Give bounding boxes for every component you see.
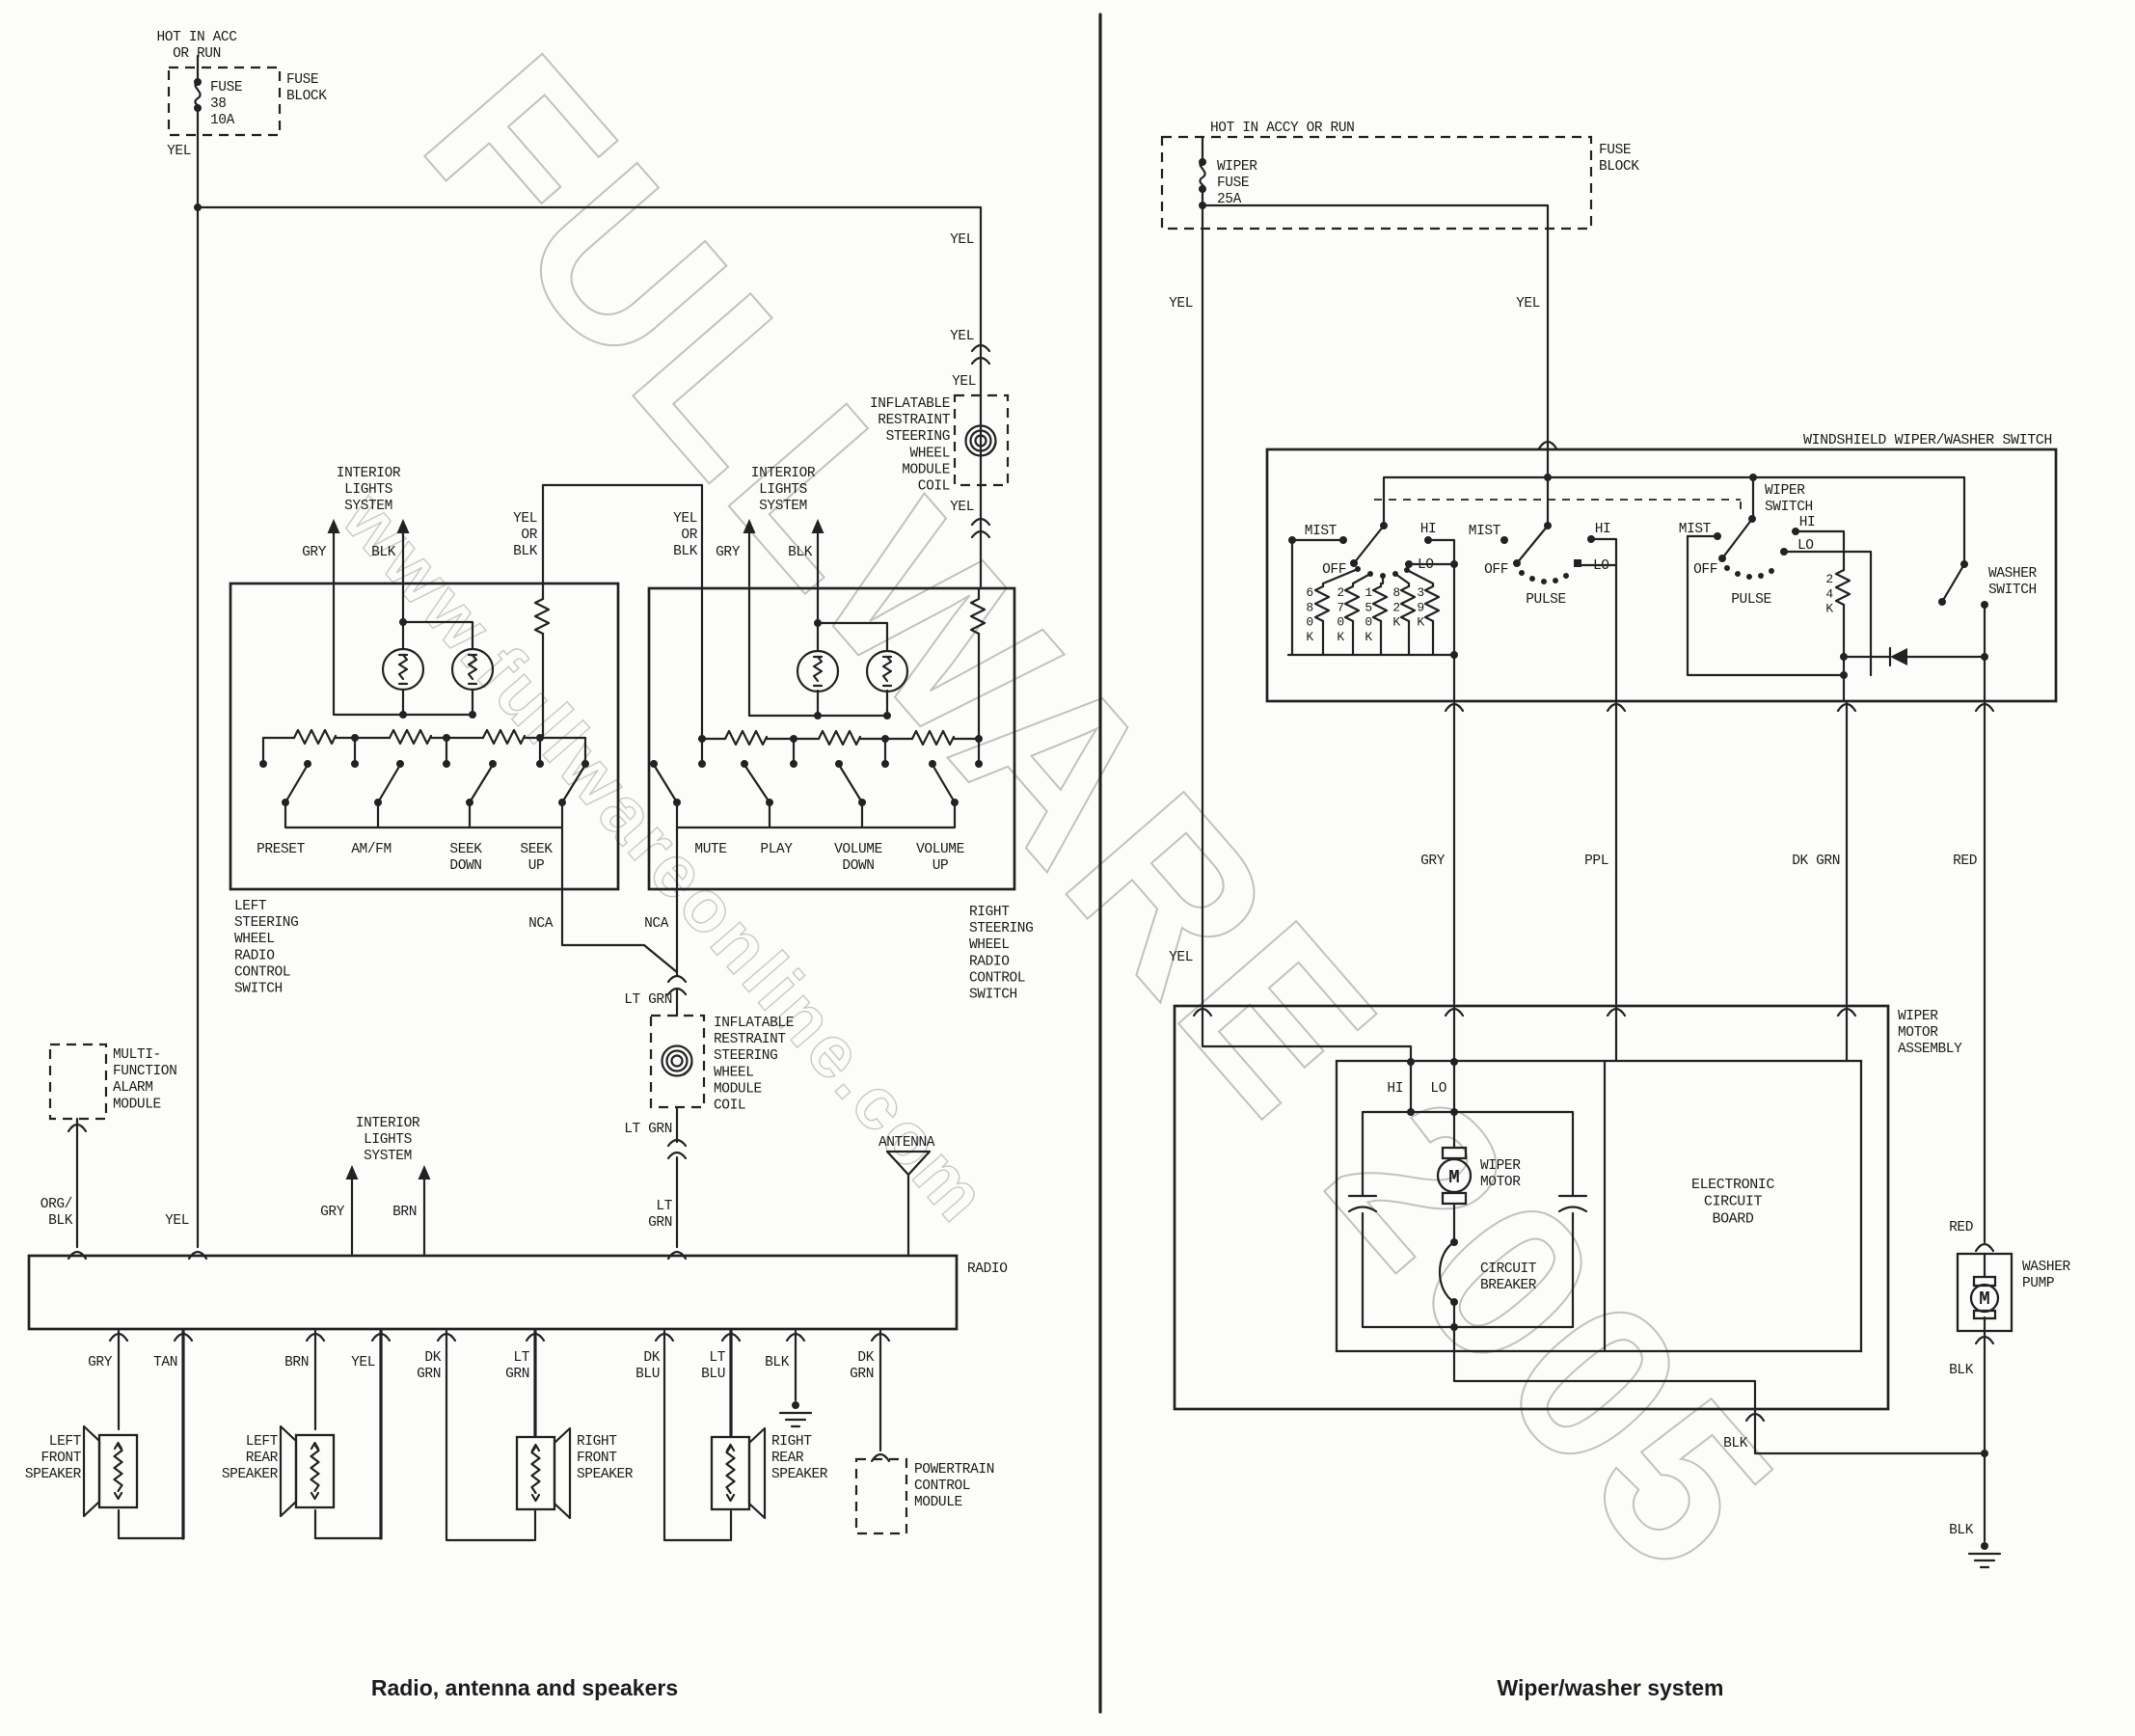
preset-label: PRESET — [257, 842, 306, 857]
mechanical-link — [1374, 500, 1741, 516]
fuse-block-label: FUSEBLOCK — [286, 72, 327, 104]
s3-hi: HI — [1799, 515, 1816, 530]
lt-grn-label-1: LT GRN — [624, 992, 672, 1008]
clockspring-coil-2: INFLATABLERESTRAINTSTEERINGWHEELMODULECO… — [651, 1016, 794, 1114]
s3-mist: MIST — [1679, 522, 1712, 537]
wire-label-yel4: YEL — [950, 500, 974, 515]
s3-off: OFF — [1693, 562, 1717, 578]
il1-blk-label: BLK — [371, 545, 396, 560]
s1-r4-82k: 82K — [1392, 585, 1400, 630]
left-switch-label: LEFTSTEERINGWHEELRADIOCONTROLSWITCH — [234, 899, 298, 997]
wiper-switch-pole-1: MIST OFF HI LO 680K 270K 150K 82K 39K — [1288, 522, 1454, 701]
w-tan: TAN — [153, 1355, 177, 1370]
s2-hi: HI — [1595, 522, 1611, 537]
radio-box — [29, 1256, 957, 1329]
diagram-canvas: FULLWARE 2005 www.fullwareonline.com HOT… — [0, 0, 2135, 1736]
wire-label-yel3: YEL — [952, 374, 976, 390]
seek-down-label: SEEKDOWN — [449, 842, 482, 874]
nca-right-label: NCA — [644, 916, 669, 932]
yob-left-label: YELORBLK — [513, 511, 538, 559]
interior-lights-label-1: INTERIORLIGHTSSYSTEM — [337, 466, 401, 514]
wiper-washer-switch: WINDSHIELD WIPER/WASHER SWITCH MIST OFF … — [1267, 432, 2056, 701]
switch-title: WINDSHIELD WIPER/WASHER SWITCH — [1803, 432, 2052, 448]
hi-terminal-label: HI — [1387, 1081, 1403, 1097]
w-ltblu: LTBLU — [701, 1350, 726, 1382]
board-label: ELECTRONICCIRCUITBOARD — [1691, 1177, 1774, 1227]
s1-r5-39k: 39K — [1417, 585, 1424, 630]
lo-terminal-label: LO — [1430, 1081, 1446, 1097]
spk2-label: LEFTREARSPEAKER — [222, 1434, 279, 1482]
w-brn: BRN — [284, 1355, 309, 1370]
w-dkgrn2: DKGRN — [850, 1350, 875, 1382]
washer-pump-label: WASHERPUMP — [2022, 1260, 2071, 1291]
blk-label-pump: BLK — [1949, 1363, 1974, 1378]
wiper-switch-pole-2: MIST OFF HI LO PULSE — [1469, 522, 1616, 701]
spk4-label: RIGHTREARSPEAKER — [771, 1434, 828, 1482]
s1-blade — [1354, 526, 1384, 563]
nca-left-label: NCA — [528, 916, 554, 932]
w-yel: YEL — [351, 1355, 375, 1370]
volume-up-label: VOLUMEUP — [916, 842, 964, 874]
s3-r-24k: 24K — [1825, 572, 1833, 616]
antenna-label: ANTENNA — [878, 1135, 935, 1151]
w-gry: GRY — [88, 1355, 113, 1370]
il1-gry-label: GRY — [302, 545, 327, 560]
ground-symbol — [780, 1401, 811, 1426]
spk3-label: RIGHTFRONTSPEAKER — [577, 1434, 634, 1482]
w-dkblu: DKBLU — [635, 1350, 661, 1382]
yob-right-label: YELORBLK — [673, 511, 698, 559]
hot-in-accy-label: HOT IN ACCY OR RUN — [1210, 121, 1354, 136]
alarm-module: MULTI-FUNCTIONALARMMODULE ORG/BLK — [41, 1044, 177, 1247]
washer-pump: RED WASHERPUMP M BLK BLK — [1949, 1220, 2070, 1567]
s3-pulse: PULSE — [1731, 592, 1771, 608]
yel-label-w2: YEL — [1516, 296, 1540, 312]
watermark: FULLWARE 2005 www.fullwareonline.com — [327, 10, 1825, 1620]
wiper-fuse-label: WIPERFUSE25A — [1217, 159, 1257, 207]
ppl-label: PPL — [1584, 854, 1608, 869]
s1-r2-270k: 270K — [1337, 585, 1344, 644]
yel-radio-label: YEL — [165, 1213, 189, 1229]
right-switch-label: RIGHTSTEERINGWHEELRADIOCONTROLSWITCH — [969, 905, 1033, 1003]
blk-label-gnd: BLK — [1949, 1523, 1974, 1538]
w-ltgrn: LTGRN — [505, 1350, 530, 1382]
interior-lights-label-2: INTERIORLIGHTSSYSTEM — [751, 466, 816, 514]
s1-r3-150k: 150K — [1365, 585, 1372, 644]
wiper-switch-pole-3: WIPERSWITCH MIST OFF HI LO PULSE 24K — [1679, 483, 1871, 701]
blk-label-motor: BLK — [1723, 1436, 1748, 1451]
w-blk: BLK — [765, 1355, 790, 1370]
il3-brn-label: BRN — [392, 1205, 417, 1220]
w-dkgrn: DKGRN — [417, 1350, 442, 1382]
fuse-38-label: FUSE3810A — [210, 80, 242, 128]
il2-blk-label: BLK — [788, 545, 813, 560]
il3-gry-label: GRY — [320, 1205, 345, 1220]
yel-label-w3: YEL — [1169, 950, 1193, 965]
circuit-breaker-label: CIRCUITBREAKER — [1480, 1261, 1537, 1293]
yel-label-w1: YEL — [1169, 296, 1193, 312]
interior-lights-label-3: INTERIORLIGHTSSYSTEM — [356, 1116, 420, 1164]
wiper-switch-label: WIPERSWITCH — [1765, 483, 1813, 515]
ground-symbol-2 — [1969, 1542, 2000, 1567]
wire-label-yel2: YEL — [950, 329, 974, 344]
washer-switch-label: WASHERSWITCH — [1988, 566, 2038, 598]
mute-label: MUTE — [694, 842, 726, 857]
right-rear-speaker — [712, 1428, 765, 1518]
s1-hi: HI — [1420, 522, 1437, 537]
s1-r1-680k: 680K — [1306, 585, 1313, 644]
red-label: RED — [1953, 854, 1977, 869]
left-front-speaker — [84, 1426, 137, 1516]
red-label-2: RED — [1949, 1220, 1973, 1235]
right-front-speaker — [517, 1428, 570, 1518]
left-rear-speaker — [281, 1426, 334, 1516]
dk-grn-label: DK GRN — [1792, 854, 1840, 869]
s1-mist: MIST — [1305, 524, 1338, 539]
il2-gry-label: GRY — [716, 545, 741, 560]
spk1-label: LEFTFRONTSPEAKER — [25, 1434, 82, 1482]
lt-grn-label-2: LT GRN — [624, 1122, 672, 1137]
diode — [1890, 648, 1907, 665]
wire-label-yel1: YEL — [950, 232, 974, 248]
seek-up-label: SEEKUP — [520, 842, 553, 874]
s2-blade — [1517, 526, 1548, 563]
pcm-label: POWERTRAINCONTROLMODULE — [914, 1462, 994, 1510]
s2-pulse: PULSE — [1526, 592, 1566, 608]
gry-label: GRY — [1420, 854, 1446, 869]
caption-right: Wiper/washer system — [1497, 1675, 1723, 1700]
wiring-diagram-scan: FULLWARE 2005 www.fullwareonline.com HOT… — [0, 0, 2135, 1736]
org-blk-label: ORG/BLK — [41, 1197, 73, 1229]
volume-down-label: VOLUMEDOWN — [834, 842, 882, 874]
wiper-motor-label: WIPERMOTOR — [1480, 1158, 1521, 1190]
wire-label-yel: YEL — [167, 144, 191, 159]
play-label: PLAY — [760, 842, 793, 857]
pcm-box — [856, 1459, 906, 1533]
s3-blade — [1722, 519, 1752, 558]
lt-grn-label-3: LTGRN — [648, 1199, 673, 1231]
hot-in-acc-label: HOT IN ACCOR RUN — [156, 30, 237, 62]
alarm-module-label: MULTI-FUNCTIONALARMMODULE — [113, 1047, 176, 1112]
caption-left: Radio, antenna and speakers — [371, 1675, 678, 1700]
washer-switch: WASHERSWITCH — [1844, 564, 2038, 701]
coil-2-label: INFLATABLERESTRAINTSTEERINGWHEELMODULECO… — [714, 1016, 794, 1114]
wiper-circuit: HOT IN ACCY OR RUN FUSEBLOCK WIPERFUSE25… — [1162, 121, 2071, 1567]
illumination-lamp — [383, 649, 423, 690]
speaker-wiring: GRY TAN BRN YEL DKGRN LTGRN DKBLU LTBLU … — [25, 1331, 994, 1540]
radio-label: RADIO — [967, 1261, 1008, 1277]
amfm-label: AM/FM — [351, 842, 392, 857]
s2-mist: MIST — [1469, 524, 1501, 539]
motor-m: M — [1448, 1167, 1459, 1188]
wma-label: WIPERMOTORASSEMBLY — [1898, 1009, 1962, 1057]
pump-m: M — [1979, 1288, 1989, 1310]
fuse-block-label-2: FUSEBLOCK — [1599, 143, 1639, 175]
s2-off: OFF — [1484, 562, 1508, 578]
